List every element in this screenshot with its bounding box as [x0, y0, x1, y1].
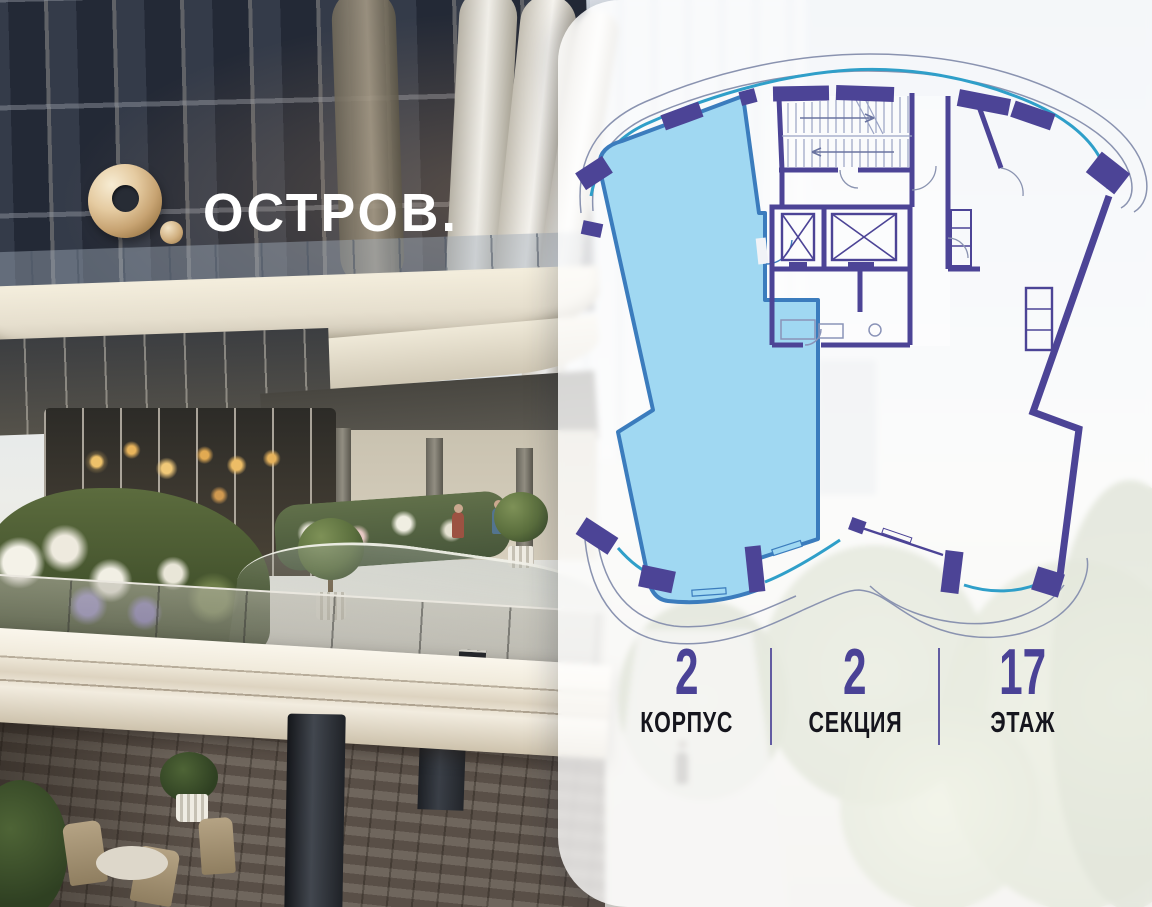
- stat-sektsiya-value: 2: [843, 640, 866, 703]
- terrace-person: [452, 512, 464, 538]
- neighbor-balcony-glazing: [862, 528, 943, 555]
- stat-korpus: 2 КОРПУС: [604, 640, 770, 760]
- brand-logo-text: ОСТРОВ.: [203, 182, 459, 244]
- logo-dot-icon: [160, 221, 183, 244]
- unit-stats: 2 КОРПУС 2 СЕКЦИЯ 17 ЭТАЖ: [604, 640, 1106, 760]
- terrace-person-head: [454, 504, 463, 513]
- stat-korpus-label: КОРПУС: [641, 707, 734, 740]
- cafe-table: [96, 846, 168, 880]
- brand-logo-icon: [88, 164, 162, 238]
- stat-etazh-label: ЭТАЖ: [991, 707, 1056, 740]
- topiary-bush: [494, 492, 548, 542]
- apartment-card: ОСТРОВ.: [0, 0, 1152, 907]
- stat-sektsiya: 2 СЕКЦИЯ: [772, 640, 938, 760]
- stat-korpus-value: 2: [675, 640, 698, 703]
- stats-divider: [770, 648, 772, 745]
- stat-etazh: 17 ЭТАЖ: [940, 640, 1106, 760]
- cafe-chair: [198, 817, 236, 875]
- logo-hole: [112, 185, 139, 212]
- stat-etazh-value: 17: [1000, 640, 1047, 703]
- stats-divider: [938, 648, 940, 745]
- floorplan-drawing: [560, 0, 1152, 645]
- planter-pot: [176, 794, 208, 822]
- support-column: [284, 714, 345, 907]
- stat-sektsiya-label: СЕКЦИЯ: [808, 707, 902, 740]
